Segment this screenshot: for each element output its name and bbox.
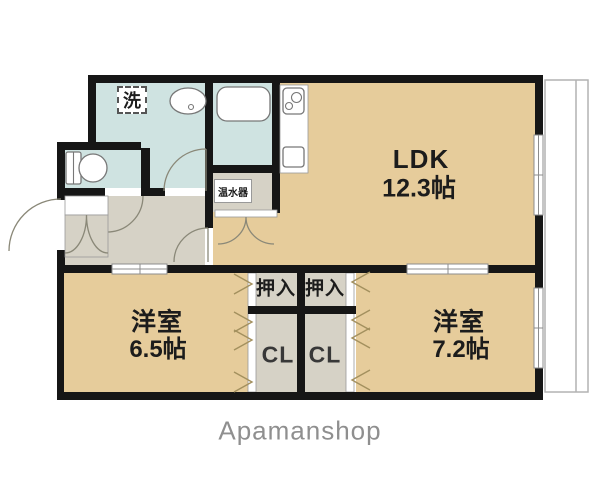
west-room-1-label: 洋室 (131, 311, 183, 336)
wall-bottom (57, 392, 543, 400)
bathtub-icon (217, 87, 270, 121)
washbasin-icon (170, 88, 206, 114)
wall-right-a (535, 75, 543, 135)
water-heater-label: 温水器 (218, 184, 248, 199)
washing-machine-box: 洗 (117, 86, 147, 114)
ldk-label: LDK (393, 146, 449, 172)
entrance-door-arc (9, 199, 61, 251)
watermark: Apamanshop (218, 416, 381, 447)
kitchen-sink-icon (283, 147, 304, 167)
wall-bathroom-ldk (272, 83, 280, 213)
wall-right-b (535, 215, 543, 288)
sliding-track-right (346, 273, 354, 392)
balcony (545, 80, 588, 392)
closet-left-label: CL (262, 344, 295, 367)
ldk-size-label: 12.3帖 (382, 177, 456, 202)
wall-toilet-bottom-a (65, 188, 105, 196)
oshiire-left-label: 押入 (256, 280, 296, 299)
west-room-2-size: 7.2帖 (432, 338, 489, 362)
sliding-door-west2 (407, 264, 488, 274)
west-room-2-label: 洋室 (433, 311, 485, 336)
floor-plan: LDK 12.3帖 洋室 6.5帖 洋室 7.2帖 押入 押入 CL CL 温水… (0, 0, 600, 480)
washing-machine-label: 洗 (123, 87, 141, 113)
wall-west1-left (57, 265, 64, 400)
wall-washroom-left (88, 75, 96, 142)
floor-plan-drawing (0, 0, 600, 480)
stove-icon (283, 88, 304, 114)
window-ldk-balcony (534, 135, 543, 215)
window-west2-balcony (534, 288, 543, 368)
west-room-1-size: 6.5帖 (129, 338, 186, 362)
water-heater-label-box: 温水器 (214, 179, 252, 203)
wall-closet-center (297, 265, 305, 400)
wall-right-c (535, 368, 543, 400)
oshiire-right-label: 押入 (305, 280, 345, 299)
entrance-storage (65, 196, 108, 257)
wall-top (88, 75, 543, 83)
balcony-outline (545, 80, 588, 392)
toilet-icon (66, 152, 107, 184)
genkan-cabinet-top (65, 196, 108, 215)
sliding-door-west1 (112, 264, 167, 274)
closet-right-label: CL (309, 344, 342, 367)
wall-mid-b (167, 265, 407, 273)
wall-toilet-top (57, 142, 141, 150)
kitchen-counter (280, 85, 308, 173)
wall-bathroom-bottom (213, 165, 272, 173)
sliding-track-left (248, 273, 256, 392)
wall-toilet-washroom (141, 148, 150, 196)
wall-left-upper (57, 142, 65, 200)
wall-mid-c (488, 265, 543, 273)
wall-mid-a (57, 265, 112, 273)
